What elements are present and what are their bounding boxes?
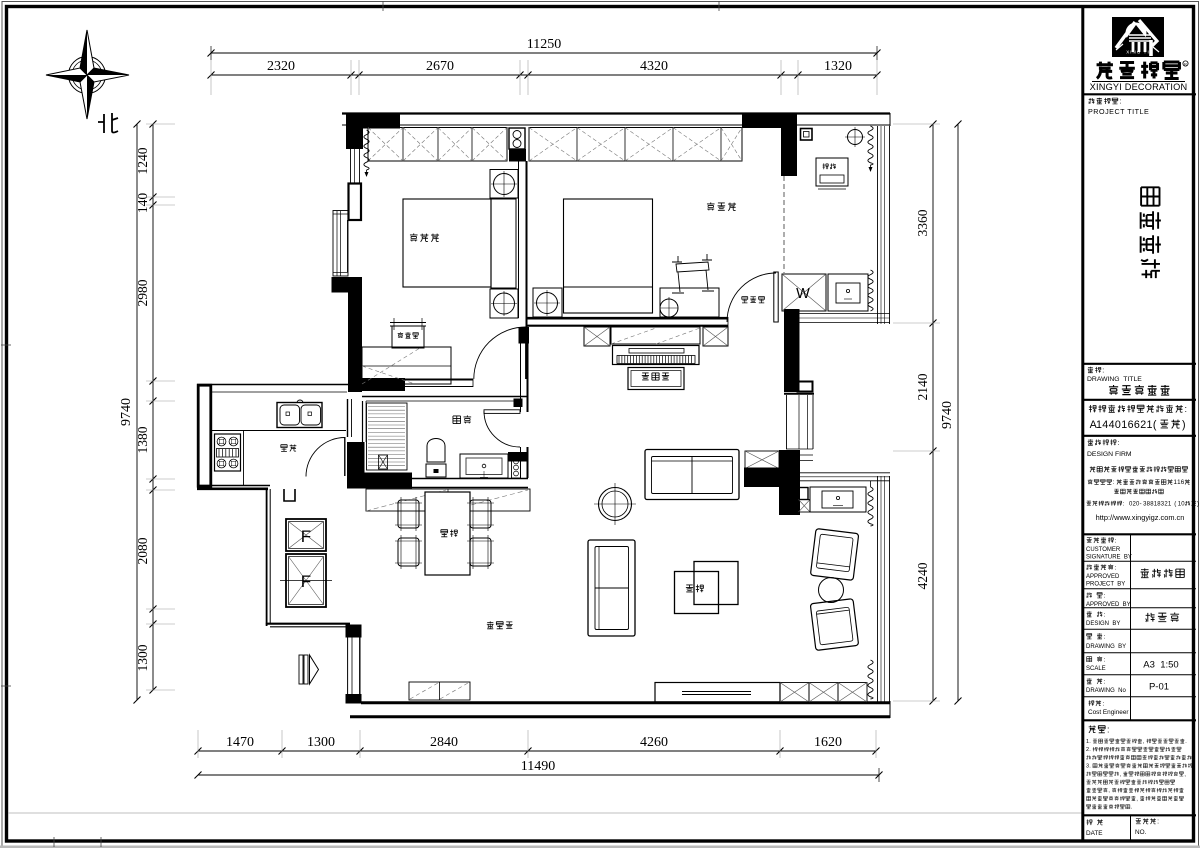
- svg-text:1: 1: [1121, 419, 1127, 431]
- svg-text:1620: 1620: [814, 735, 842, 750]
- svg-text:PROJECT BY: PROJECT BY: [1086, 582, 1125, 588]
- svg-text::: :: [1157, 819, 1159, 826]
- svg-text:Cost Engineer: Cost Engineer: [1088, 709, 1129, 716]
- svg-text:XINGYI DECORATION: XINGYI DECORATION: [1090, 82, 1188, 92]
- svg-text:NO.: NO.: [1135, 829, 1147, 836]
- svg-text:CUSTOMER: CUSTOMER: [1086, 547, 1121, 553]
- svg-text:P-01: P-01: [1149, 682, 1169, 693]
- svg-text:): ): [1182, 419, 1186, 431]
- svg-text:2: 2: [1140, 419, 1146, 431]
- svg-text:1470: 1470: [226, 735, 254, 750]
- svg-text:XING YI: XING YI: [1126, 50, 1149, 55]
- svg-text:4320: 4320: [640, 59, 668, 74]
- svg-text::: :: [1104, 593, 1106, 600]
- svg-text::: :: [1104, 657, 1106, 664]
- svg-text::: :: [1113, 479, 1115, 486]
- svg-text:APPROVED BY: APPROVED BY: [1086, 602, 1131, 608]
- svg-text:11490: 11490: [521, 759, 555, 774]
- svg-text:2080: 2080: [135, 537, 150, 564]
- svg-text:1240: 1240: [135, 147, 150, 174]
- svg-text:6: 6: [1128, 419, 1134, 431]
- svg-text:DRAWING TITLE: DRAWING TITLE: [1087, 376, 1142, 383]
- svg-text:APPROVED: APPROVED: [1086, 574, 1120, 580]
- svg-text:9740: 9740: [119, 398, 134, 426]
- svg-text::: :: [1115, 565, 1117, 572]
- svg-text::: :: [1119, 97, 1121, 106]
- svg-text:2670: 2670: [426, 59, 454, 74]
- svg-text:2980: 2980: [135, 279, 150, 306]
- svg-text:): ): [1197, 501, 1199, 507]
- svg-text:1: 1: [1096, 419, 1102, 431]
- svg-text:4: 4: [1102, 419, 1108, 431]
- svg-text:11250: 11250: [527, 37, 561, 52]
- svg-text:F: F: [301, 572, 311, 591]
- svg-text:4260: 4260: [640, 735, 668, 750]
- svg-text:F: F: [301, 527, 311, 546]
- svg-text:2840: 2840: [430, 735, 458, 750]
- svg-text:9740: 9740: [940, 401, 955, 429]
- svg-text:140: 140: [135, 193, 150, 214]
- svg-text:2320: 2320: [267, 59, 295, 74]
- svg-text::: :: [1102, 701, 1104, 708]
- svg-text:http://www.xingyigz.com.cn: http://www.xingyigz.com.cn: [1096, 513, 1185, 522]
- svg-text:R: R: [1184, 62, 1187, 67]
- svg-text:0: 0: [1115, 419, 1121, 431]
- svg-text:(: (: [1153, 419, 1157, 431]
- svg-text:DATE: DATE: [1086, 830, 1103, 837]
- svg-text:1380: 1380: [135, 426, 150, 453]
- svg-text:PROJECT TITLE: PROJECT TITLE: [1088, 107, 1149, 116]
- svg-text::: :: [1107, 724, 1109, 734]
- svg-text:DESIGN FIRM: DESIGN FIRM: [1087, 451, 1132, 458]
- svg-text:6: 6: [1181, 479, 1185, 486]
- svg-text:1300: 1300: [135, 644, 150, 671]
- svg-text::: :: [1184, 404, 1187, 414]
- svg-text:-: -: [1140, 501, 1142, 507]
- svg-text::: :: [1115, 538, 1117, 545]
- svg-text:SIGNATURE BY: SIGNATURE BY: [1086, 555, 1132, 561]
- svg-text::: :: [1104, 634, 1106, 641]
- svg-text:DRAWING No: DRAWING No: [1086, 688, 1126, 694]
- svg-text:(: (: [1174, 501, 1176, 507]
- svg-text:SCALE: SCALE: [1086, 666, 1106, 672]
- svg-text:3360: 3360: [915, 209, 930, 236]
- svg-text:1320: 1320: [824, 59, 852, 74]
- svg-text:4: 4: [1109, 419, 1115, 431]
- svg-text:DRAWING BY: DRAWING BY: [1086, 644, 1126, 650]
- svg-text::: :: [1117, 439, 1119, 447]
- svg-text:A3 1:50: A3 1:50: [1143, 660, 1178, 671]
- svg-text::: :: [1104, 679, 1106, 686]
- svg-text::: :: [1102, 366, 1104, 374]
- svg-text:DESIGN BY: DESIGN BY: [1086, 621, 1120, 627]
- svg-text:1300: 1300: [307, 735, 335, 750]
- svg-text:6: 6: [1134, 419, 1140, 431]
- svg-text:1: 1: [1147, 419, 1153, 431]
- svg-text:2140: 2140: [915, 373, 930, 400]
- svg-text:4240: 4240: [915, 562, 930, 589]
- svg-text::: :: [1104, 612, 1106, 619]
- svg-text:W: W: [796, 286, 810, 302]
